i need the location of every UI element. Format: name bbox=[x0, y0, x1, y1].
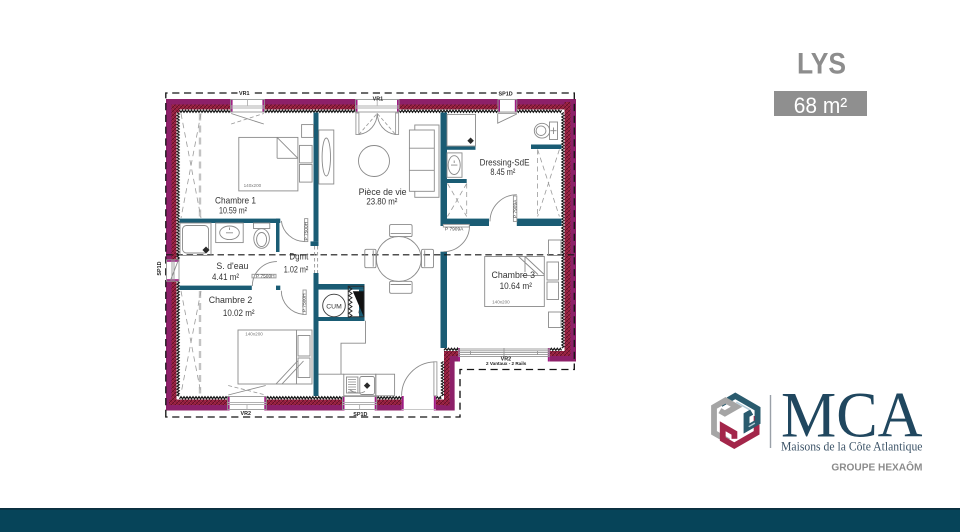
svg-text:VR2: VR2 bbox=[241, 411, 252, 417]
svg-text:S. d'eau: S. d'eau bbox=[216, 261, 248, 272]
svg-text:GROUPE HEXAÔM: GROUPE HEXAÔM bbox=[831, 461, 922, 474]
svg-text:VR1: VR1 bbox=[239, 91, 250, 97]
svg-text:68 m²: 68 m² bbox=[794, 93, 848, 118]
svg-text:LYS: LYS bbox=[797, 48, 846, 81]
svg-text:SP1D: SP1D bbox=[353, 412, 367, 418]
svg-text:140x200: 140x200 bbox=[244, 183, 262, 188]
svg-text:SP1D: SP1D bbox=[157, 261, 163, 275]
svg-text:P 7500H: P 7500H bbox=[256, 273, 275, 279]
svg-text:Chambre 3: Chambre 3 bbox=[492, 270, 536, 281]
svg-text:P 7909A: P 7909A bbox=[513, 199, 519, 218]
svg-text:P 7909A: P 7909A bbox=[445, 227, 464, 233]
svg-text:140x200: 140x200 bbox=[245, 332, 263, 337]
svg-text:4.41 m²: 4.41 m² bbox=[212, 272, 239, 283]
svg-text:10.59 m²: 10.59 m² bbox=[219, 206, 247, 217]
svg-text:10.02 m²: 10.02 m² bbox=[223, 308, 255, 319]
svg-text:1.02 m²: 1.02 m² bbox=[284, 265, 309, 276]
svg-text:CUM: CUM bbox=[326, 304, 342, 311]
svg-text:Dgmt: Dgmt bbox=[289, 252, 308, 263]
svg-text:Maisons de la Côte Atlantique: Maisons de la Côte Atlantique bbox=[781, 439, 923, 453]
svg-text:Chambre 2: Chambre 2 bbox=[209, 295, 253, 306]
svg-text:10.64 m²: 10.64 m² bbox=[500, 281, 532, 292]
svg-text:P 7500H: P 7500H bbox=[302, 293, 308, 312]
svg-text:2 Vantaux - 2 Rails: 2 Vantaux - 2 Rails bbox=[486, 361, 527, 366]
svg-text:23.80 m²: 23.80 m² bbox=[366, 197, 397, 208]
svg-text:8.45 m²: 8.45 m² bbox=[490, 167, 515, 178]
svg-text:SP1D: SP1D bbox=[499, 92, 513, 98]
svg-text:P 7500H: P 7500H bbox=[303, 221, 309, 240]
svg-text:140x200: 140x200 bbox=[492, 300, 510, 305]
svg-text:VR1: VR1 bbox=[373, 96, 384, 102]
